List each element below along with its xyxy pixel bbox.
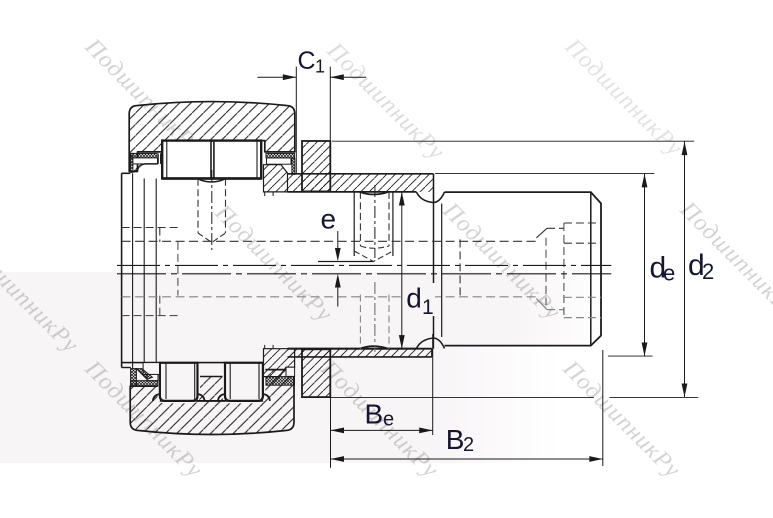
svg-text:e: e: [663, 261, 675, 286]
svg-text:C: C: [298, 47, 316, 75]
svg-text:2: 2: [702, 259, 714, 284]
svg-text:e: e: [321, 203, 337, 234]
svg-text:1: 1: [315, 56, 325, 76]
